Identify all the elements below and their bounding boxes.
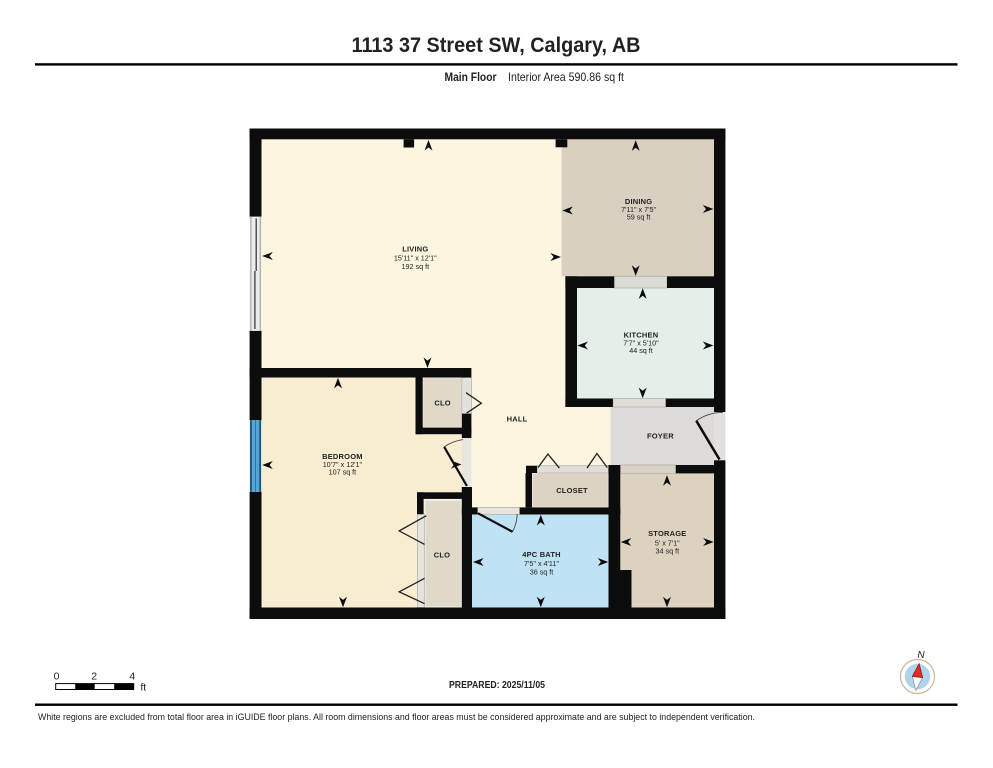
svg-text:2: 2 <box>91 671 97 683</box>
svg-text:192 sq ft: 192 sq ft <box>402 262 430 271</box>
svg-text:Main Floor: Main Floor <box>445 70 497 84</box>
svg-text:PREPARED: 2025/11/05: PREPARED: 2025/11/05 <box>449 680 545 691</box>
svg-text:N: N <box>917 650 925 661</box>
svg-text:STORAGE: STORAGE <box>648 529 686 538</box>
svg-text:0: 0 <box>54 671 60 683</box>
svg-text:107 sq ft: 107 sq ft <box>329 468 357 477</box>
svg-text:White regions are excluded fro: White regions are excluded from total fl… <box>38 712 755 722</box>
svg-text:34 sq ft: 34 sq ft <box>656 546 680 555</box>
svg-text:FOYER: FOYER <box>647 432 674 441</box>
svg-text:CLOSET: CLOSET <box>556 486 588 495</box>
svg-text:36 sq ft: 36 sq ft <box>530 567 554 576</box>
svg-text:CLO: CLO <box>434 398 450 407</box>
svg-text:59 sq ft: 59 sq ft <box>627 213 651 222</box>
svg-text:4: 4 <box>129 671 135 683</box>
svg-text:44 sq ft: 44 sq ft <box>629 346 653 355</box>
svg-text:LIVING: LIVING <box>402 244 428 253</box>
svg-text:CLO: CLO <box>434 551 450 560</box>
svg-text:1113 37 Street SW, Calgary, AB: 1113 37 Street SW, Calgary, AB <box>352 33 641 57</box>
svg-text:ft: ft <box>140 682 146 694</box>
svg-text:HALL: HALL <box>507 415 528 424</box>
svg-text:Interior Area 590.86 sq ft: Interior Area 590.86 sq ft <box>508 70 625 84</box>
